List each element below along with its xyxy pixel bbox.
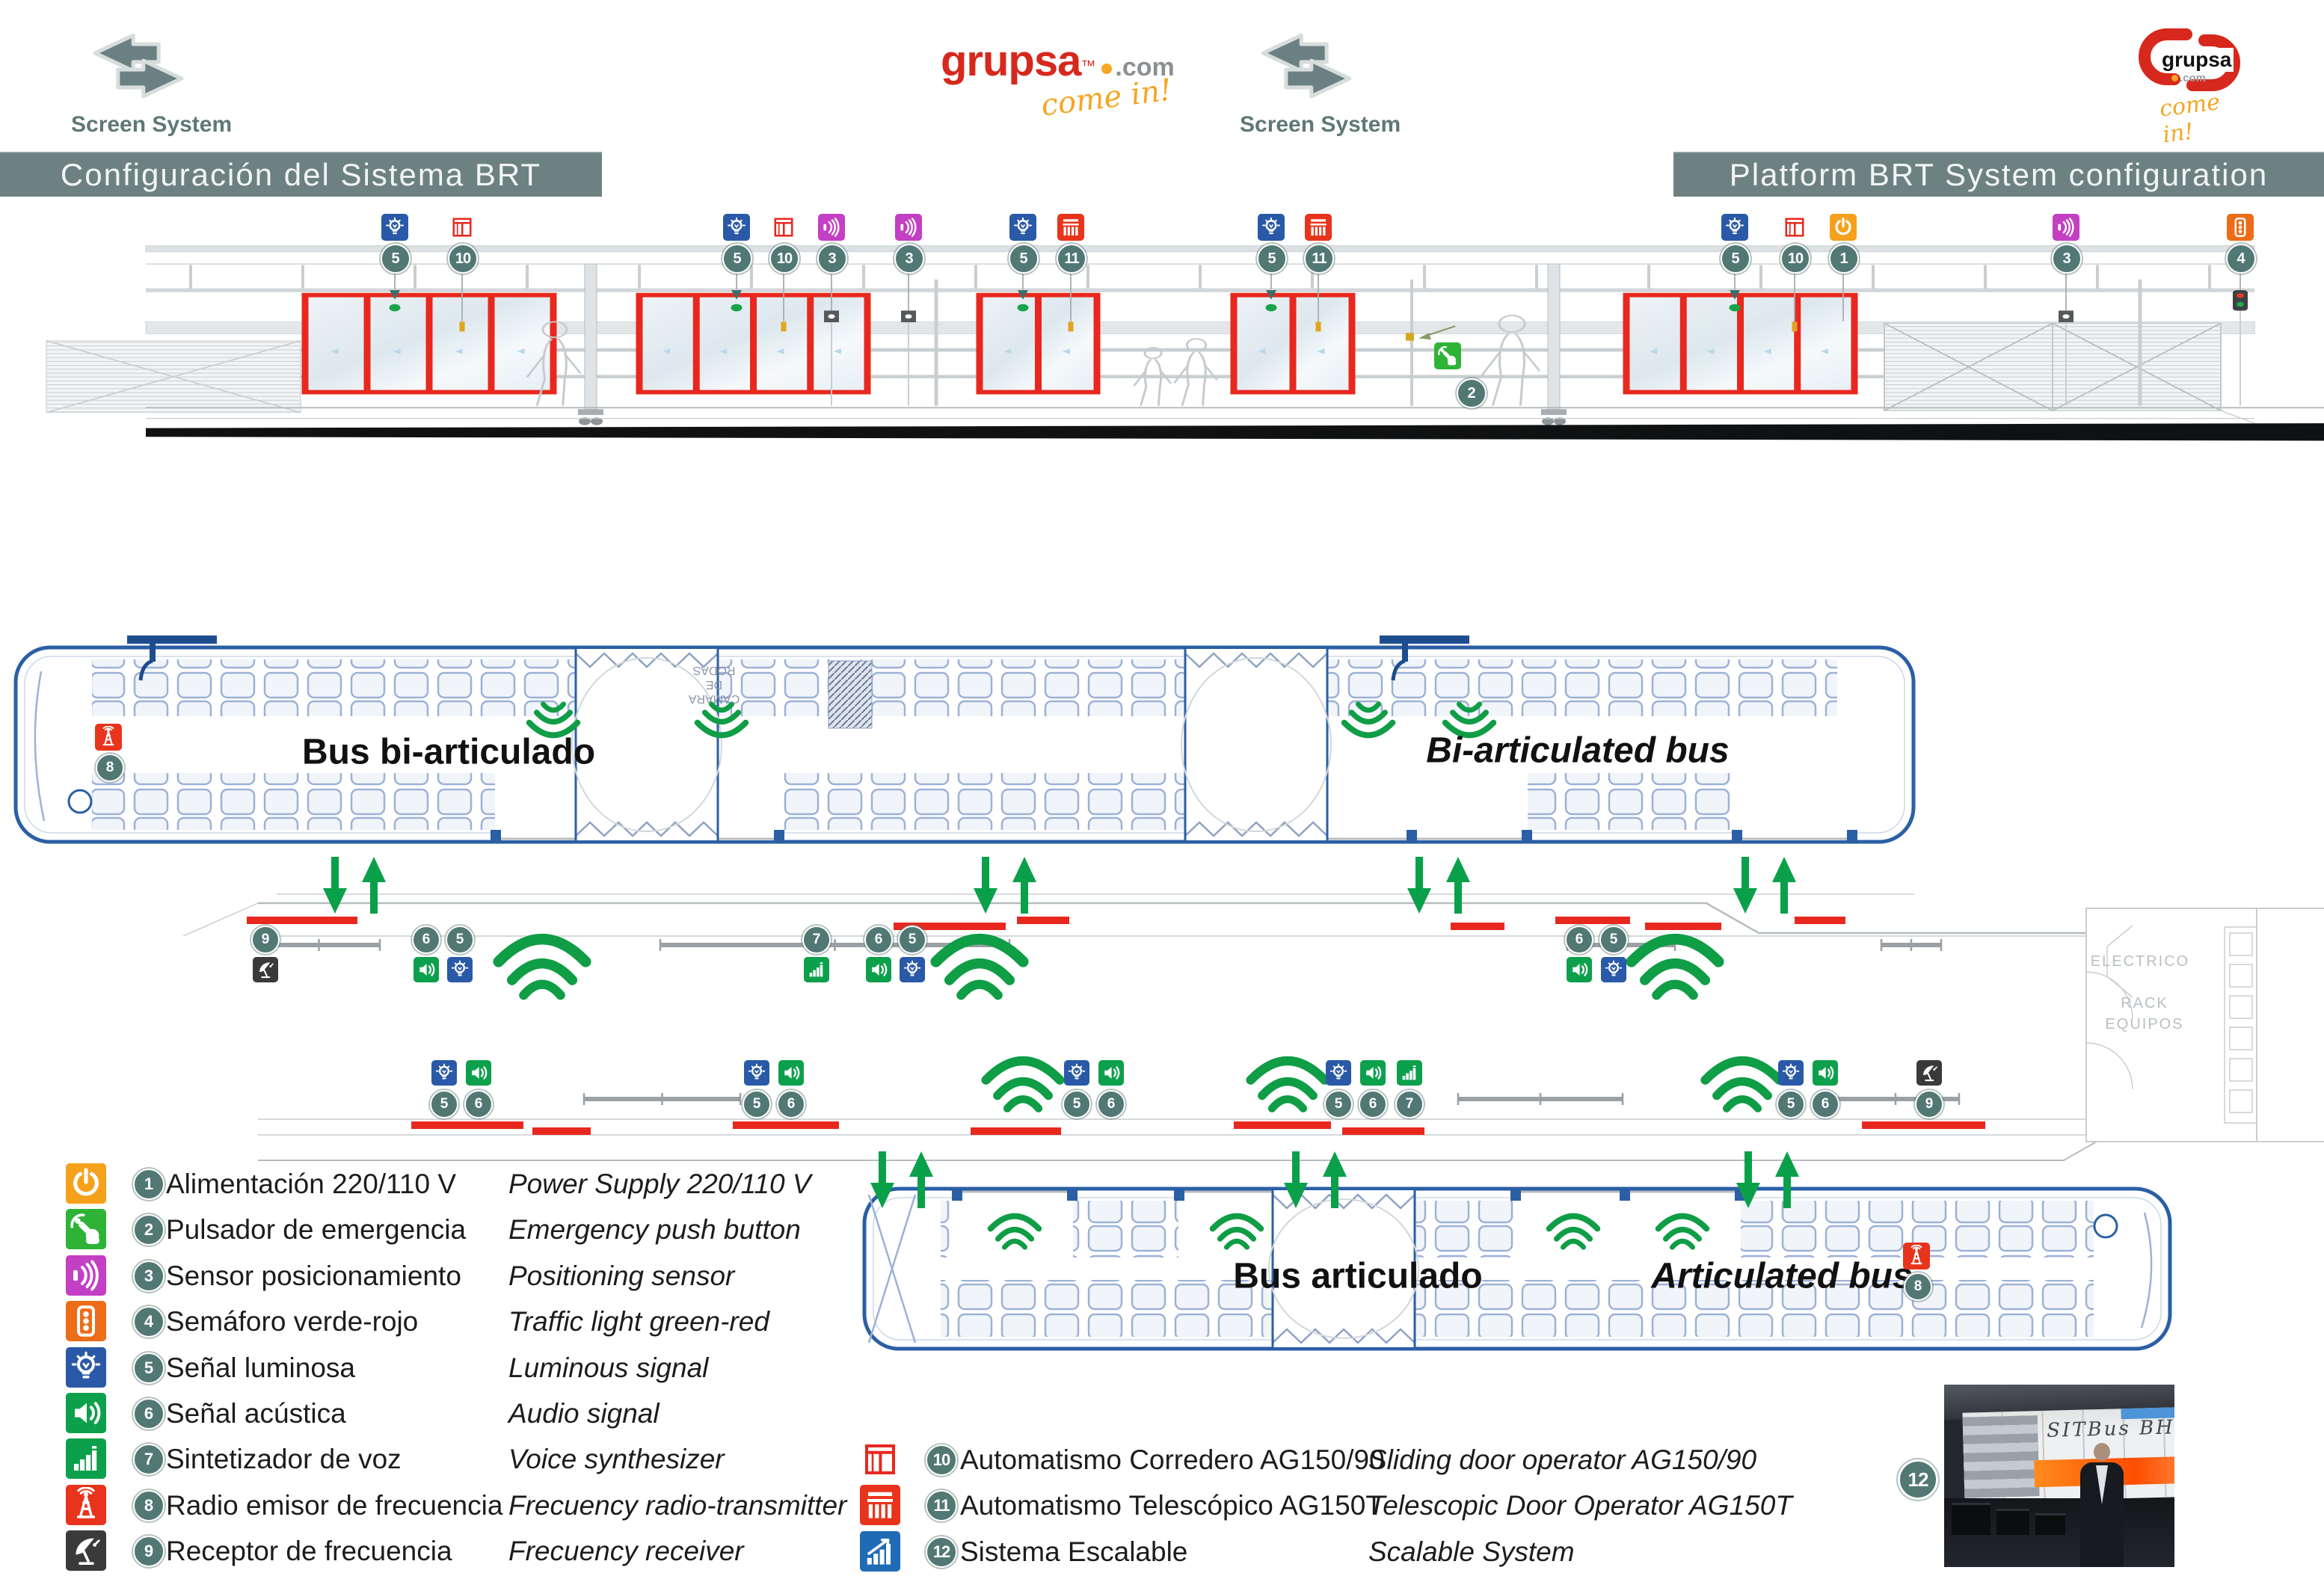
legend-es-text: Señal acústica — [166, 1398, 346, 1429]
legend: 1Alimentación 220/110 VPower Supply 220/… — [0, 0, 2324, 1579]
control-room-photo: SITBus BH — [1944, 1385, 2174, 1567]
callout-badge-10: 10 — [926, 1444, 957, 1476]
callout-badge-12: 12 — [926, 1536, 957, 1568]
callout-badge-8: 8 — [133, 1490, 165, 1521]
bulb-icon — [66, 1347, 106, 1388]
callout-badge-4: 4 — [133, 1306, 165, 1338]
scalable-icon — [860, 1531, 900, 1572]
push-icon — [66, 1209, 106, 1249]
speaker-icon — [66, 1393, 106, 1433]
legend-es-text: Automatismo Telescópico AG150T — [960, 1490, 1383, 1521]
legend-en-text: Power Supply 220/110 V — [508, 1169, 811, 1200]
callout-badge-5: 5 — [133, 1352, 165, 1384]
legend-en-text: Telescopic Door Operator AG150T — [1368, 1490, 1792, 1521]
legend-en-text: Emergency push button — [508, 1214, 801, 1246]
legend-en-text: Frecuency receiver — [508, 1536, 744, 1567]
legend-es-text: Automatismo Corredero AG150/90 — [960, 1444, 1385, 1476]
callout-badge-11: 11 — [926, 1490, 957, 1521]
tele-icon — [860, 1485, 900, 1525]
callout-badge-3: 3 — [133, 1261, 165, 1292]
photo-person-head — [2094, 1443, 2110, 1461]
legend-es-text: Pulsador de emergencia — [166, 1214, 466, 1246]
photo-monitor — [2035, 1513, 2065, 1535]
legend-en-text: Traffic light green-red — [508, 1306, 769, 1338]
legend-es-text: Señal luminosa — [166, 1352, 355, 1384]
photo-monitor — [1952, 1503, 1991, 1535]
callout-badge-7: 7 — [133, 1444, 165, 1475]
legend-en-text: Audio signal — [508, 1398, 660, 1429]
legend-es-text: Sensor posicionamiento — [166, 1261, 461, 1292]
legend-es-text: Sistema Escalable — [960, 1536, 1187, 1568]
voice-icon — [66, 1438, 106, 1479]
legend-es-text: Alimentación 220/110 V — [166, 1169, 456, 1200]
legend-es-text: Sintetizador de voz — [166, 1444, 402, 1475]
legend-en-text: Positioning sensor — [508, 1261, 734, 1292]
callout-badge-9: 9 — [133, 1536, 165, 1567]
photo-screen-text: SITBus BH — [2047, 1416, 2174, 1441]
callout-badge-6: 6 — [133, 1398, 165, 1429]
legend-es-text: Radio emisor de frecuencia — [166, 1490, 502, 1521]
page: Screen System grupsa™.com come in! Scree… — [0, 0, 2324, 1579]
receiver-icon — [66, 1530, 106, 1571]
legend-en-text: Frecuency radio-transmitter — [508, 1490, 846, 1521]
callout-badge-1: 1 — [133, 1169, 165, 1200]
legend-es-text: Semáforo verde-rojo — [166, 1306, 418, 1338]
radio-icon — [66, 1485, 106, 1525]
photo-video-wall: SITBus BH — [1962, 1407, 2174, 1502]
legend-en-text: Scalable System — [1368, 1536, 1575, 1568]
waves-icon — [66, 1255, 106, 1296]
legend-en-text: Sliding door operator AG150/90 — [1368, 1444, 1756, 1476]
photo-camera-mosaic — [1963, 1415, 2040, 1498]
photo-monitor — [1996, 1509, 2029, 1535]
legend-es-text: Receptor de frecuencia — [166, 1536, 452, 1567]
legend-en-text: Luminous signal — [508, 1352, 708, 1384]
power-icon — [66, 1163, 106, 1204]
door2-icon — [860, 1439, 900, 1480]
traffic-icon — [66, 1301, 106, 1341]
callout-badge-2: 2 — [133, 1214, 165, 1246]
legend-en-text: Voice synthesizer — [508, 1444, 725, 1475]
